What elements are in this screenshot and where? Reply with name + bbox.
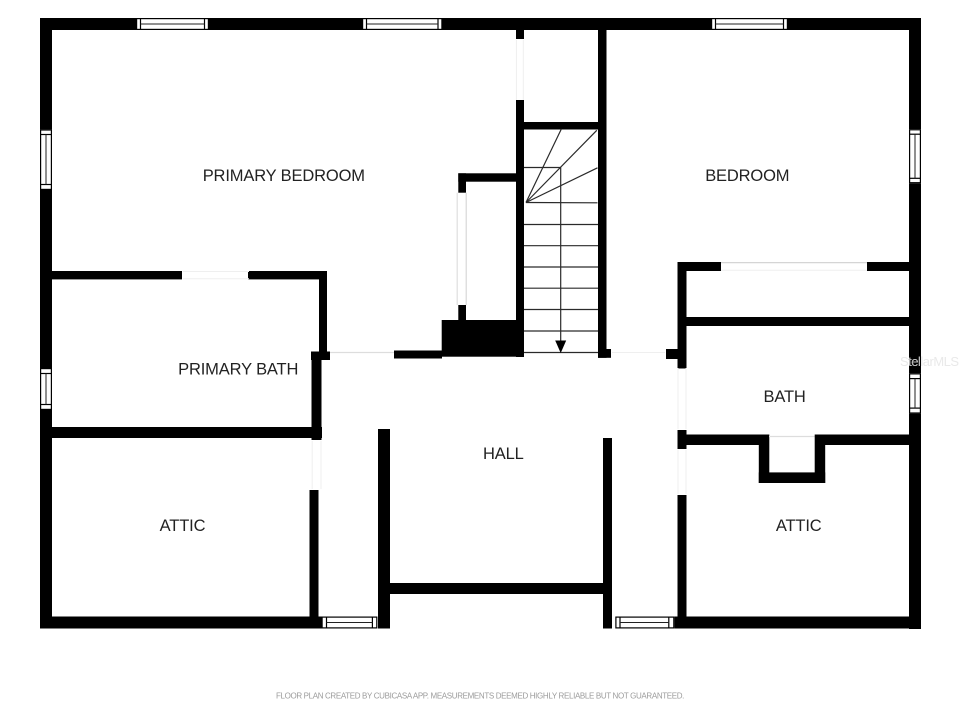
svg-text:FLOOR PLAN CREATED BY CUBICASA: FLOOR PLAN CREATED BY CUBICASA APP. MEAS… bbox=[276, 692, 684, 701]
svg-text:PRIMARY BEDROOM: PRIMARY BEDROOM bbox=[203, 167, 365, 185]
svg-text:PRIMARY BATH: PRIMARY BATH bbox=[178, 361, 298, 379]
svg-text:ATTIC: ATTIC bbox=[776, 517, 822, 535]
svg-text:BEDROOM: BEDROOM bbox=[705, 167, 789, 185]
svg-text:ATTIC: ATTIC bbox=[160, 517, 206, 535]
svg-text:HALL: HALL bbox=[483, 445, 524, 463]
svg-text:BATH: BATH bbox=[764, 388, 806, 406]
